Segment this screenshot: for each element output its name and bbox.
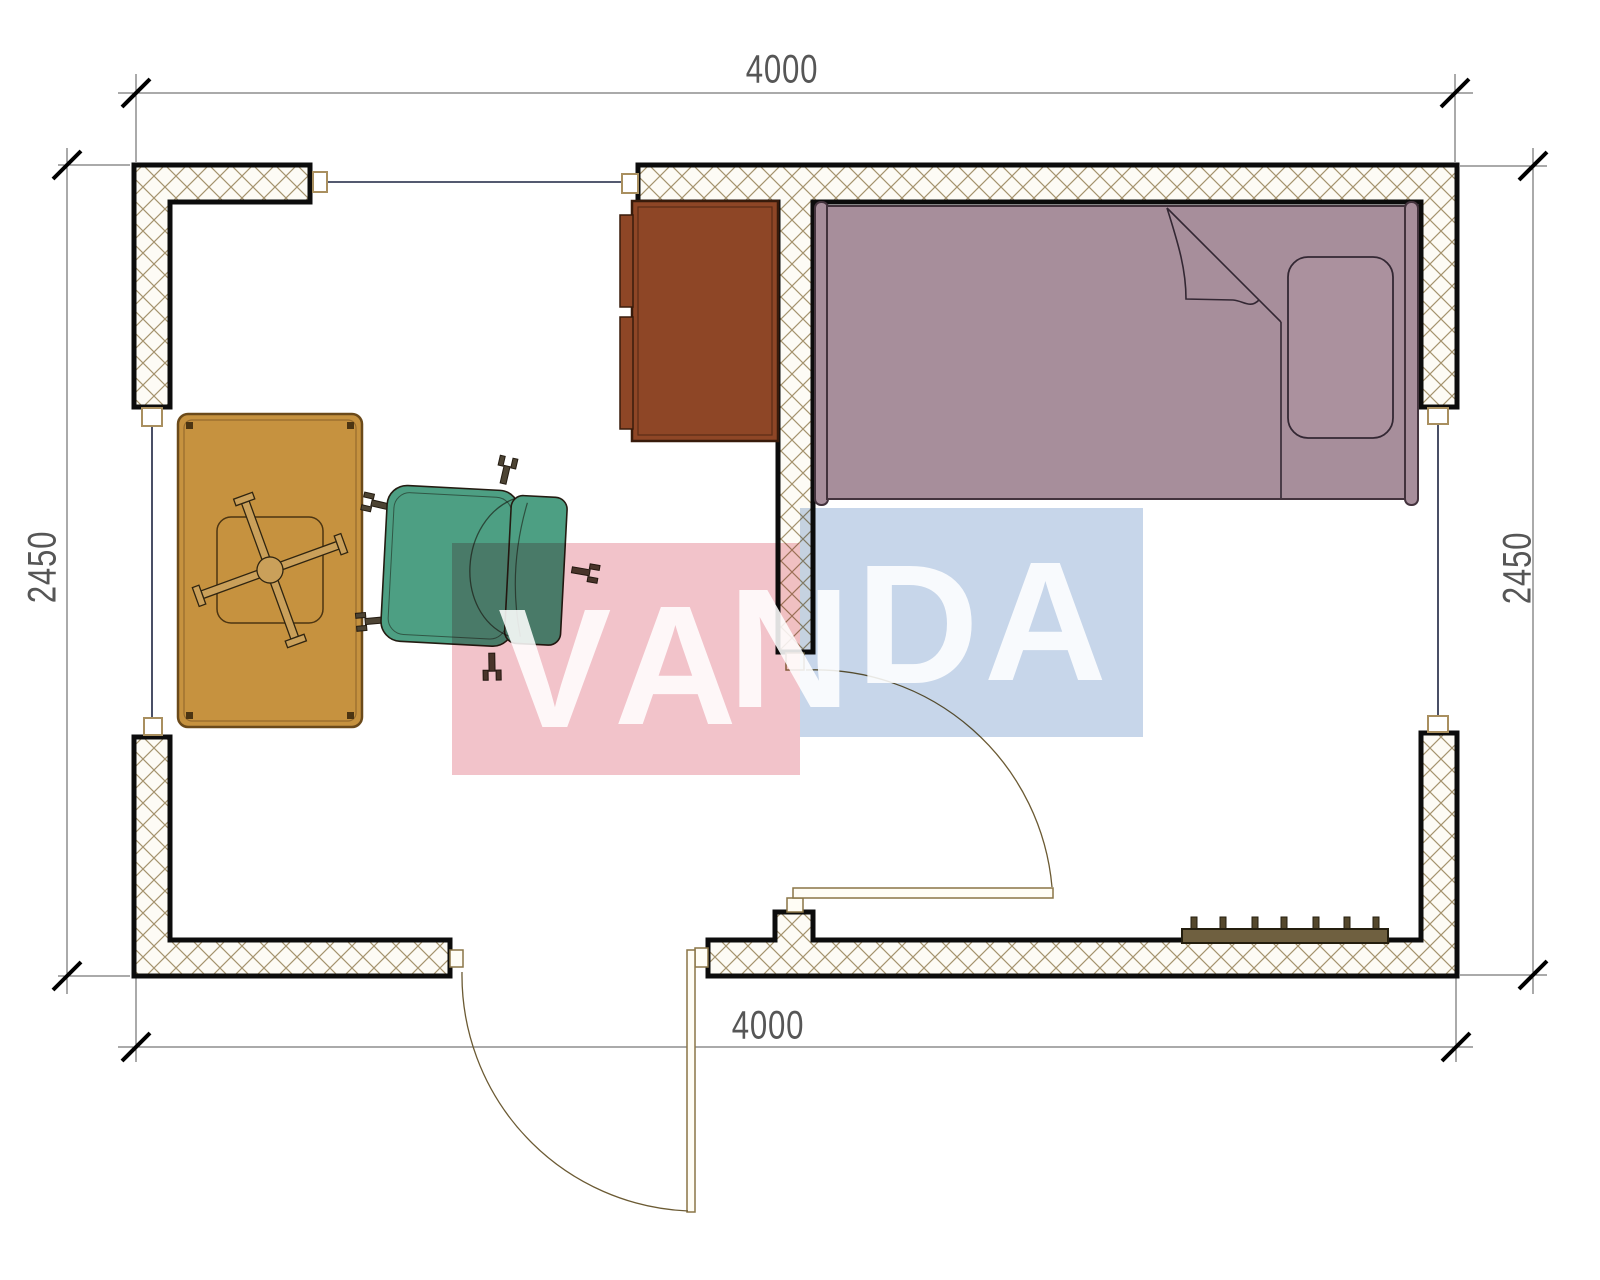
desk <box>620 201 778 441</box>
door-leaf <box>687 950 695 1212</box>
watermark-letter: N <box>728 554 851 744</box>
wall-top-left-L <box>134 165 310 407</box>
dimension-text-right: 2450 <box>1496 532 1541 605</box>
table <box>169 414 372 727</box>
watermark-letter: V <box>498 574 611 764</box>
watermark-letter: A <box>984 527 1107 717</box>
door-leaf <box>793 888 1053 898</box>
chair-caster <box>494 455 518 485</box>
radiator <box>1182 917 1388 943</box>
radiator-body <box>1182 929 1388 943</box>
bed <box>815 202 1418 505</box>
desk-side-panel <box>620 215 633 307</box>
window-connector <box>1428 408 1448 424</box>
entrance-door <box>450 948 708 1212</box>
watermark-letter: A <box>614 571 737 761</box>
floor-plan-canvas: V A N D A 4000 4000 2450 2450 <box>0 0 1600 1280</box>
window-connector <box>142 408 162 426</box>
bed-pillow <box>1288 257 1393 438</box>
wall-bottom-left-L <box>134 737 450 976</box>
window-connector <box>1428 716 1448 732</box>
window-connector <box>622 174 638 193</box>
window-connector <box>313 172 327 192</box>
dimension-text-bottom: 4000 <box>732 1004 805 1049</box>
door-frame <box>450 950 463 967</box>
desk-top <box>632 201 778 441</box>
door-hinge-post <box>787 898 803 912</box>
door-frame <box>695 948 708 967</box>
watermark: V A N D A <box>452 508 1143 775</box>
dimension-text-left: 2450 <box>21 531 66 604</box>
desk-side-panel <box>620 317 633 429</box>
watermark-letter: D <box>856 530 979 720</box>
bed-footboard <box>1405 202 1418 505</box>
window-connector <box>144 718 162 735</box>
dim-extension-left <box>58 165 130 976</box>
door-swing-arc <box>462 972 688 1211</box>
plan-drawing: V A N D A <box>0 0 1600 1280</box>
dimension-text-top: 4000 <box>746 48 819 93</box>
